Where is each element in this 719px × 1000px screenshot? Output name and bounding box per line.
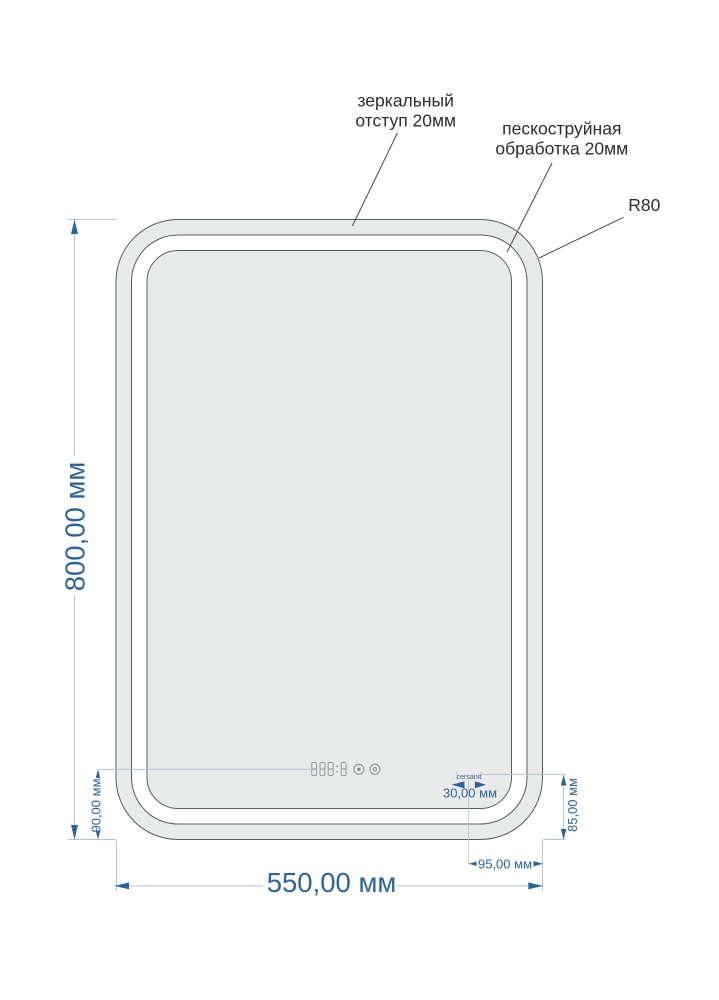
svg-text:R80: R80 <box>628 195 660 215</box>
svg-text:зеркальный: зеркальный <box>357 90 453 110</box>
svg-text:550,00 мм: 550,00 мм <box>267 867 397 898</box>
svg-text:отступ 20мм: отступ 20мм <box>355 110 456 130</box>
svg-text:cersanit: cersanit <box>457 772 482 781</box>
svg-text:30,00 мм: 30,00 мм <box>443 786 497 801</box>
svg-text:обработка 20мм: обработка 20мм <box>495 139 628 159</box>
svg-text:85,00 мм: 85,00 мм <box>565 778 580 832</box>
svg-text:пескоструйная: пескоструйная <box>502 119 621 139</box>
svg-text:95,00 мм: 95,00 мм <box>478 856 532 871</box>
svg-text:800,00 мм: 800,00 мм <box>60 462 91 592</box>
svg-text:90,00 мм: 90,00 мм <box>88 778 103 832</box>
